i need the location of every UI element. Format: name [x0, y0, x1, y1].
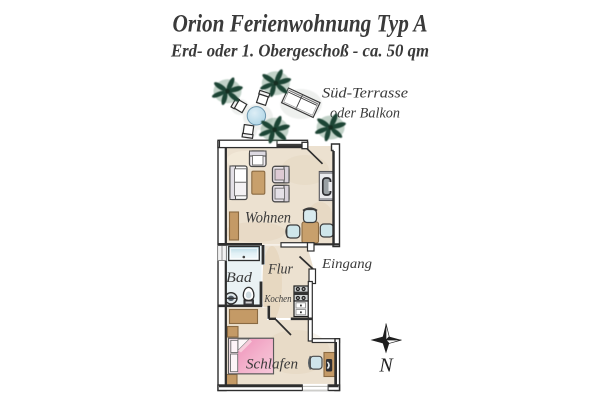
svg-text:Kochen: Kochen — [264, 294, 292, 305]
svg-text:Eingang: Eingang — [321, 256, 372, 271]
svg-text:Süd-Terrasse: Süd-Terrasse — [322, 86, 408, 102]
svg-text:Flur: Flur — [267, 262, 293, 278]
svg-text:Bad: Bad — [226, 270, 253, 286]
svg-text:Schlafen: Schlafen — [246, 357, 298, 373]
svg-text:Wohnen: Wohnen — [245, 210, 291, 227]
svg-text:N: N — [378, 355, 394, 377]
svg-text:Orion Ferienwohnung Typ A: Orion Ferienwohnung Typ A — [173, 9, 428, 38]
svg-text:Erd- oder 1. Obergeschoß - ca.: Erd- oder 1. Obergeschoß - ca. 50 qm — [170, 41, 429, 61]
